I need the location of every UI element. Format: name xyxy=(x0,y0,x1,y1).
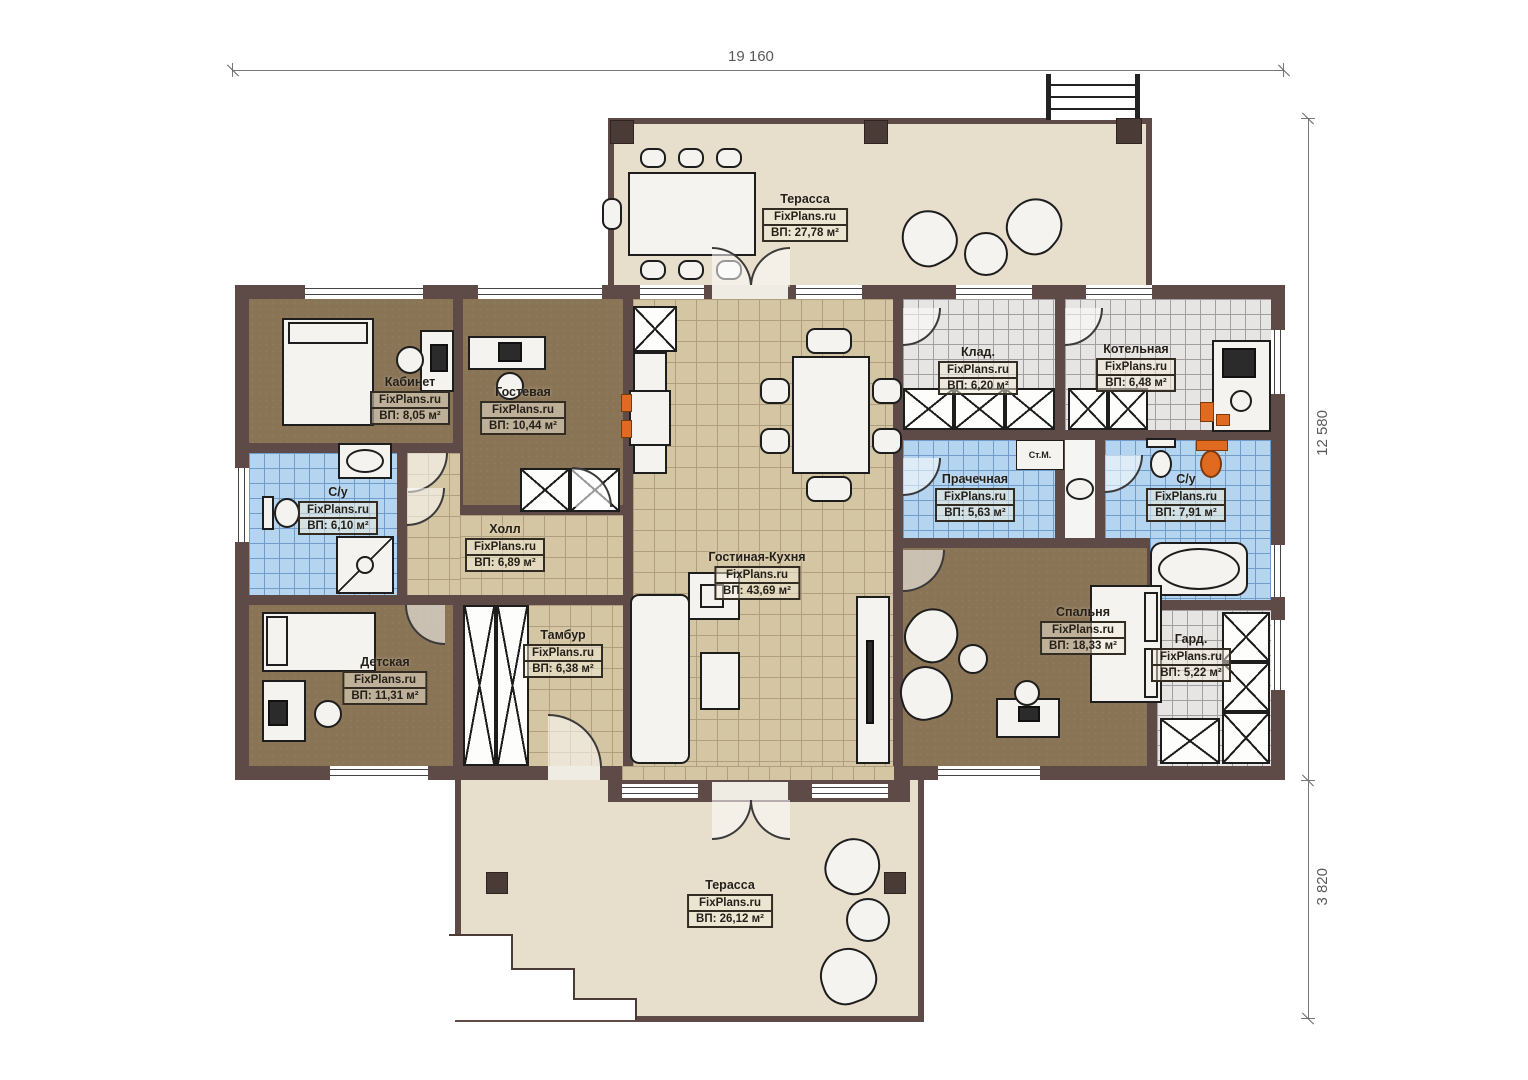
door-opening xyxy=(712,782,788,800)
chair xyxy=(806,328,852,354)
room-info-box: FixPlans.ru ВП: 6,48 м² xyxy=(1096,358,1176,392)
room-name: Гостевая xyxy=(480,385,566,399)
area-text: ВП: 18,33 м² xyxy=(1042,637,1124,653)
room-label-gard: Гард. FixPlans.ru ВП: 5,22 м² xyxy=(1151,632,1231,682)
room-name: Холл xyxy=(465,522,545,536)
floor-living-bay xyxy=(622,766,894,780)
room-name: Прачечная xyxy=(935,472,1015,486)
brand-text: FixPlans.ru xyxy=(344,673,425,687)
washing-machine: Ст.М. xyxy=(1016,440,1064,470)
room-name: Гард. xyxy=(1151,632,1231,646)
bidet-accent xyxy=(1196,440,1228,451)
chair xyxy=(760,378,790,404)
window xyxy=(812,784,888,798)
room-name: Терасса xyxy=(687,878,773,892)
door-opening xyxy=(548,766,600,780)
brand-text: FixPlans.ru xyxy=(1042,623,1124,637)
room-name: Клад. xyxy=(938,345,1018,359)
window xyxy=(640,285,704,299)
dimension-right-main-value: 12 580 xyxy=(1314,410,1331,456)
room-label-living-kitchen: Гостиная-Кухня FixPlans.ru ВП: 43,69 м² xyxy=(708,550,805,600)
chair xyxy=(678,148,704,168)
room-label-kotelnaya: Котельная FixPlans.ru ВП: 6,48 м² xyxy=(1096,342,1176,392)
area-text: ВП: 6,20 м² xyxy=(940,377,1016,393)
wardrobe xyxy=(1160,718,1220,764)
terrace-step xyxy=(511,968,575,1020)
brand-text: FixPlans.ru xyxy=(372,393,448,407)
chair xyxy=(396,346,424,374)
dining-table xyxy=(628,172,756,256)
terrace-pillar xyxy=(610,120,634,144)
room-info-box: FixPlans.ru ВП: 5,22 м² xyxy=(1151,648,1231,682)
wardrobe xyxy=(520,468,570,512)
room-label-su-left: С/у FixPlans.ru ВП: 6,10 м² xyxy=(298,485,378,535)
window xyxy=(478,285,602,299)
chair xyxy=(640,260,666,280)
terrace-step xyxy=(449,934,513,1020)
window xyxy=(305,285,423,299)
brand-text: FixPlans.ru xyxy=(482,403,564,417)
room-name: Кабинет xyxy=(370,375,450,389)
monitor xyxy=(268,700,288,726)
sink xyxy=(346,449,384,473)
room-name: Спальня xyxy=(1040,605,1126,619)
window xyxy=(622,784,698,798)
chair xyxy=(678,260,704,280)
round-table xyxy=(964,232,1008,276)
room-info-box: FixPlans.ru ВП: 6,89 м² xyxy=(465,538,545,572)
room-info-box: FixPlans.ru ВП: 26,12 м² xyxy=(687,894,773,928)
toilet-tank xyxy=(262,496,274,530)
room-name: Котельная xyxy=(1096,342,1176,356)
area-text: ВП: 10,44 м² xyxy=(482,417,564,433)
brand-text: FixPlans.ru xyxy=(716,568,798,582)
area-text: ВП: 7,91 м² xyxy=(1148,504,1224,520)
storage-shelf xyxy=(1068,388,1108,430)
area-text: ВП: 8,05 м² xyxy=(372,407,448,423)
sofa xyxy=(630,594,690,764)
tv xyxy=(866,640,874,724)
chair xyxy=(716,148,742,168)
chair xyxy=(872,378,902,404)
room-name: Гостиная-Кухня xyxy=(708,550,805,564)
area-text: ВП: 6,38 м² xyxy=(525,660,601,676)
terrace-pillar xyxy=(486,872,508,894)
area-text: ВП: 6,89 м² xyxy=(467,554,543,570)
brand-text: FixPlans.ru xyxy=(300,503,376,517)
room-label-su-right: С/у FixPlans.ru ВП: 7,91 м² xyxy=(1146,472,1226,522)
brand-text: FixPlans.ru xyxy=(1153,650,1229,664)
room-label-prachechnaya: Прачечная FixPlans.ru ВП: 5,63 м² xyxy=(935,472,1015,522)
brand-text: FixPlans.ru xyxy=(467,540,543,554)
room-info-box: FixPlans.ru ВП: 7,91 м² xyxy=(1146,488,1226,522)
terrace-pillar xyxy=(1116,118,1142,144)
floor-plan-canvas: Ст.М. Терасса FixPlans.ru ВП: 27,78 м² К… xyxy=(0,0,1528,1080)
brand-text: FixPlans.ru xyxy=(764,210,846,224)
stove xyxy=(629,390,671,446)
wardrobe xyxy=(1222,712,1270,764)
terrace-step xyxy=(573,998,637,1020)
area-text: ВП: 5,63 м² xyxy=(937,504,1013,520)
brand-text: FixPlans.ru xyxy=(689,896,771,910)
round-table xyxy=(846,898,890,942)
pillow xyxy=(266,616,288,666)
dimension-line-top xyxy=(232,70,1283,71)
pillow xyxy=(288,322,368,344)
area-text: ВП: 27,78 м² xyxy=(764,224,846,240)
boiler-accent xyxy=(1200,402,1214,422)
room-name: Терасса xyxy=(762,192,848,206)
room-label-detskaya: Детская FixPlans.ru ВП: 11,31 м² xyxy=(342,655,427,705)
window xyxy=(330,766,428,780)
terrace-stairs xyxy=(1046,74,1140,120)
brand-text: FixPlans.ru xyxy=(1098,360,1174,374)
chair xyxy=(640,148,666,168)
boiler xyxy=(1222,348,1256,378)
room-label-spalnya: Спальня FixPlans.ru ВП: 18,33 м² xyxy=(1040,605,1126,655)
door-opening xyxy=(712,285,788,299)
room-label-tambur: Тамбур FixPlans.ru ВП: 6,38 м² xyxy=(523,628,603,678)
window xyxy=(1271,620,1285,690)
laptop xyxy=(1018,706,1040,722)
boiler-accent xyxy=(1216,414,1230,426)
window xyxy=(1271,330,1285,394)
toilet-tank xyxy=(1146,438,1176,448)
pantry-shelf xyxy=(633,306,677,352)
room-info-box: FixPlans.ru ВП: 6,10 м² xyxy=(298,501,378,535)
window xyxy=(796,285,862,299)
chair xyxy=(806,476,852,502)
kitchen-accent xyxy=(621,394,632,412)
room-info-box: FixPlans.ru ВП: 18,33 м² xyxy=(1040,621,1126,655)
area-text: ВП: 6,10 м² xyxy=(300,517,376,533)
shower-drain xyxy=(356,556,374,574)
toilet xyxy=(274,498,300,528)
room-label-terrace-top: Терасса FixPlans.ru ВП: 27,78 м² xyxy=(762,192,848,242)
storage-shelf xyxy=(1108,388,1148,430)
room-name: Тамбур xyxy=(523,628,603,642)
room-info-box: FixPlans.ru ВП: 8,05 м² xyxy=(370,391,450,425)
window xyxy=(938,766,1040,780)
area-text: ВП: 43,69 м² xyxy=(716,582,798,598)
brand-text: FixPlans.ru xyxy=(1148,490,1224,504)
window xyxy=(956,285,1032,299)
dimension-right-terrace-value: 3 820 xyxy=(1314,868,1331,906)
coffee-table xyxy=(700,652,740,710)
brand-text: FixPlans.ru xyxy=(937,490,1013,504)
window xyxy=(1271,545,1285,597)
room-info-box: FixPlans.ru ВП: 10,44 м² xyxy=(480,401,566,435)
area-text: ВП: 26,12 м² xyxy=(689,910,771,926)
monitor xyxy=(430,344,448,372)
monitor xyxy=(498,342,522,362)
chair xyxy=(602,198,622,230)
room-label-hall: Холл FixPlans.ru ВП: 6,89 м² xyxy=(465,522,545,572)
room-info-box: FixPlans.ru ВП: 43,69 м² xyxy=(714,566,800,600)
room-info-box: FixPlans.ru ВП: 6,20 м² xyxy=(938,361,1018,395)
room-name: С/у xyxy=(1146,472,1226,486)
room-info-box: FixPlans.ru ВП: 6,38 м² xyxy=(523,644,603,678)
room-label-kabinet: Кабинет FixPlans.ru ВП: 8,05 м² xyxy=(370,375,450,425)
room-info-box: FixPlans.ru ВП: 27,78 м² xyxy=(762,208,848,242)
room-name: Детская xyxy=(342,655,427,669)
room-info-box: FixPlans.ru ВП: 5,63 м² xyxy=(935,488,1015,522)
area-text: ВП: 6,48 м² xyxy=(1098,374,1174,390)
room-label-klad: Клад. FixPlans.ru ВП: 6,20 м² xyxy=(938,345,1018,395)
chair xyxy=(872,428,902,454)
dimension-line-right-terrace xyxy=(1308,780,1309,1018)
chair xyxy=(314,700,342,728)
wardrobe xyxy=(463,605,496,766)
chair xyxy=(1014,680,1040,706)
round-table xyxy=(958,644,988,674)
wash-basin xyxy=(1066,478,1094,500)
area-text: ВП: 5,22 м² xyxy=(1153,664,1229,680)
room-name: С/у xyxy=(298,485,378,499)
utility-sink xyxy=(1230,390,1252,412)
chair xyxy=(760,428,790,454)
bathtub-basin xyxy=(1158,548,1240,590)
brand-text: FixPlans.ru xyxy=(940,363,1016,377)
terrace-pillar xyxy=(884,872,906,894)
window xyxy=(235,468,249,542)
dimension-top-value: 19 160 xyxy=(728,48,774,65)
kitchen-accent xyxy=(621,420,632,438)
area-text: ВП: 11,31 м² xyxy=(344,687,425,703)
room-label-terrace-bottom: Терасса FixPlans.ru ВП: 26,12 м² xyxy=(687,878,773,928)
dining-table xyxy=(792,356,870,474)
window xyxy=(1086,285,1152,299)
terrace-pillar xyxy=(864,120,888,144)
room-info-box: FixPlans.ru ВП: 11,31 м² xyxy=(342,671,427,705)
dimension-line-right-main xyxy=(1308,118,1309,780)
brand-text: FixPlans.ru xyxy=(525,646,601,660)
room-label-gostevaya: Гостевая FixPlans.ru ВП: 10,44 м² xyxy=(480,385,566,435)
